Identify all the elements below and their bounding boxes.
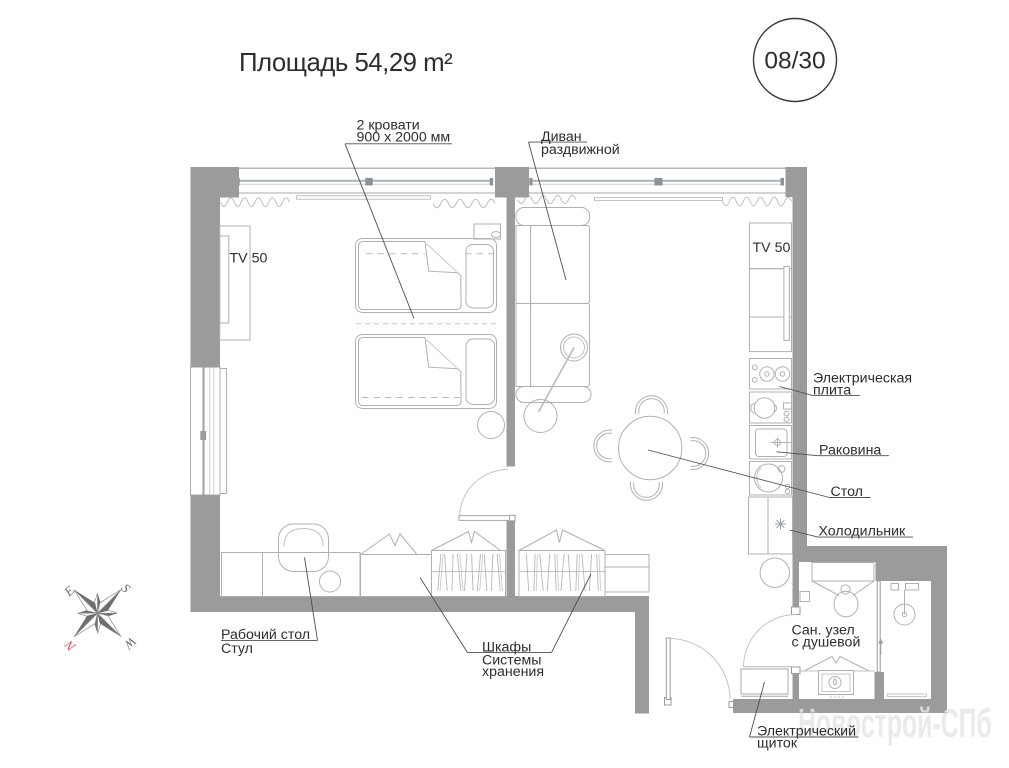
svg-text:хранения: хранения <box>482 664 544 680</box>
svg-text:щиток: щиток <box>757 736 798 752</box>
svg-text:Стул: Стул <box>221 641 253 657</box>
svg-text:Площадь 54,29 m²: Площадь 54,29 m² <box>239 49 453 77</box>
svg-text:с душевой: с душевой <box>792 635 861 651</box>
svg-text:08/30: 08/30 <box>764 48 825 75</box>
svg-text:раздвижной: раздвижной <box>541 142 620 158</box>
svg-text:TV 50: TV 50 <box>230 251 268 267</box>
svg-text:TV 50: TV 50 <box>753 240 791 256</box>
svg-text:900 х 2000 мм: 900 х 2000 мм <box>357 129 451 145</box>
